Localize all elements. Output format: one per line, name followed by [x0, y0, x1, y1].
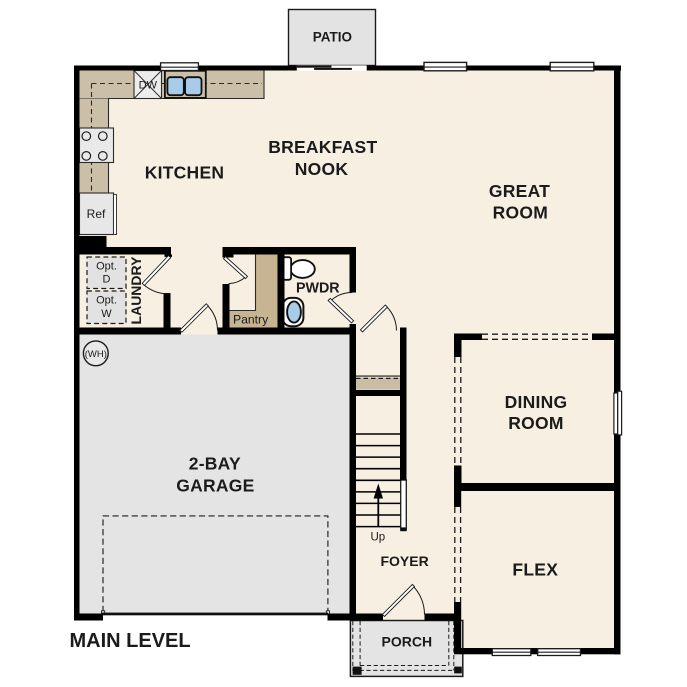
svg-text:D: D — [103, 273, 111, 285]
svg-text:FOYER: FOYER — [380, 553, 428, 569]
svg-text:W: W — [101, 308, 112, 320]
svg-text:PORCH: PORCH — [382, 633, 433, 649]
svg-text:NOOK: NOOK — [295, 159, 349, 179]
svg-text:Ref: Ref — [87, 207, 106, 221]
svg-text:Opt.: Opt. — [96, 295, 117, 307]
svg-text:DINING: DINING — [505, 392, 568, 412]
svg-text:(WH): (WH) — [85, 349, 107, 360]
svg-text:GREAT: GREAT — [489, 181, 550, 201]
svg-text:BREAKFAST: BREAKFAST — [268, 137, 377, 157]
svg-text:ROOM: ROOM — [493, 203, 548, 223]
svg-text:PATIO: PATIO — [313, 30, 352, 45]
svg-text:PWDR: PWDR — [296, 281, 340, 297]
svg-text:MAIN LEVEL: MAIN LEVEL — [70, 630, 191, 652]
svg-text:Pantry: Pantry — [233, 313, 269, 327]
svg-text:GARAGE: GARAGE — [176, 475, 254, 495]
svg-text:Opt.: Opt. — [96, 261, 117, 273]
svg-text:DW: DW — [139, 79, 158, 91]
svg-text:FLEX: FLEX — [512, 559, 558, 579]
svg-text:Up: Up — [370, 531, 385, 543]
svg-text:ROOM: ROOM — [508, 413, 563, 433]
svg-text:LAUNDRY: LAUNDRY — [128, 256, 144, 325]
svg-text:2-BAY: 2-BAY — [189, 453, 241, 473]
svg-text:KITCHEN: KITCHEN — [145, 163, 225, 183]
